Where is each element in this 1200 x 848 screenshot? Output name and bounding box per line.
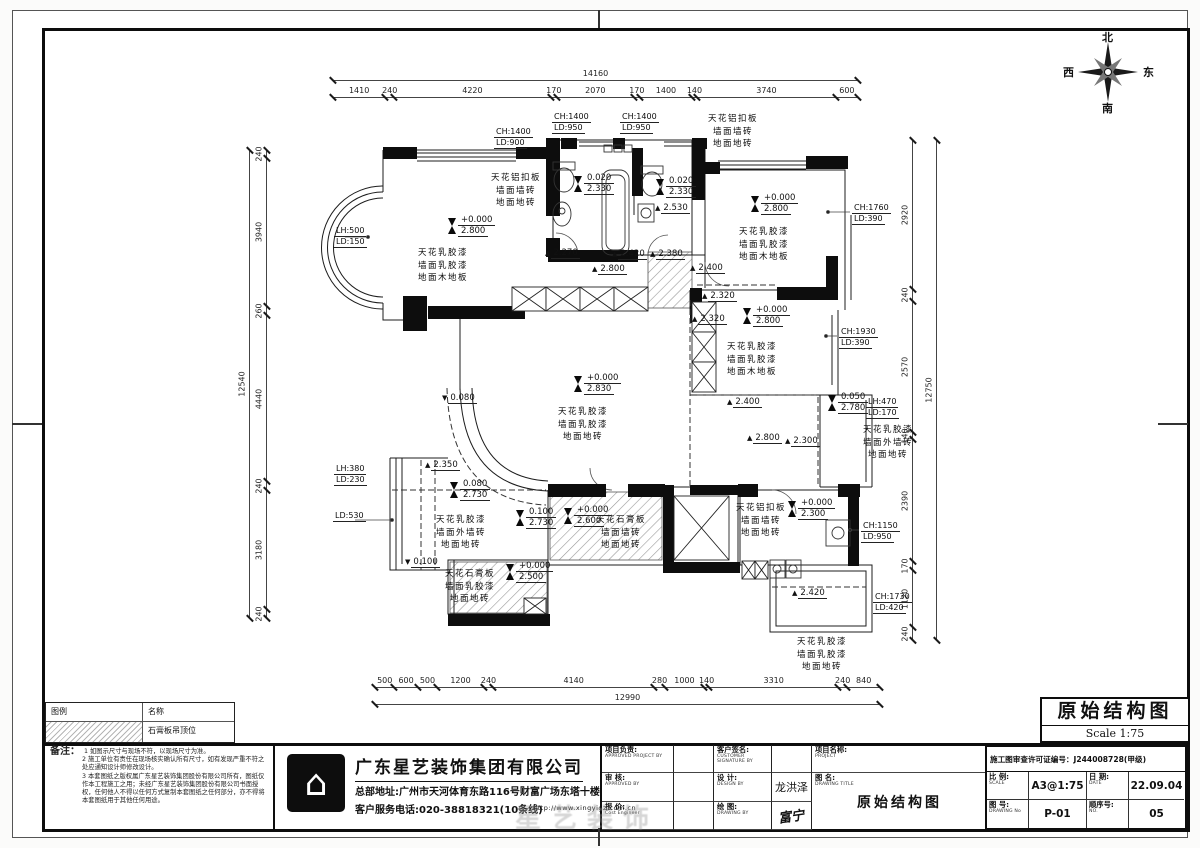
finish-label: 天花石膏板墙面乳胶漆地面地砖 (445, 568, 495, 606)
drawing-title-box: 原始结构图 Scale 1:75 (1040, 697, 1190, 743)
cell-drawn-by-value: 富宁 (772, 802, 812, 830)
house-icon: ⌂ (305, 763, 328, 804)
cell-scale-value: A3@1:75 (1029, 772, 1087, 800)
level-marker: ▲2.420 (792, 588, 827, 598)
dimension-label: 140 (699, 676, 714, 685)
triangle-up-icon: ▲ (545, 249, 550, 257)
dimension-label: 140 (687, 86, 702, 95)
elevation-bowtie-icon (506, 564, 514, 580)
license-number: 施工图审查许可证编号：J244008728(甲级) (987, 747, 1185, 772)
finish-label: 天花乳胶漆墙面外墙砖地面地砖 (863, 424, 913, 462)
cell-seq-label: 顺序号:NO. (1087, 800, 1129, 828)
dimension-label: 240 (382, 86, 397, 95)
dimension-label: 2390 (901, 491, 910, 511)
cell-check-value (674, 773, 714, 801)
dimension-label: 2570 (901, 357, 910, 377)
dimension-label: 4220 (462, 86, 482, 95)
cell-drawing-title: 图 名:DRAWING TITLE 原始结构图 (812, 773, 987, 830)
triangle-down-icon: ▼ (442, 394, 447, 402)
dimension-line (266, 150, 267, 618)
finish-label: 天花铝扣板墙面墙砖地面地砖 (736, 502, 786, 540)
level-marker: ▲2.530 (655, 203, 690, 213)
elevation-bowtie-icon (448, 218, 456, 234)
elevation-bowtie-icon (564, 508, 572, 524)
legend-header-name: 名称 (143, 703, 234, 722)
level-marker: ▲2.300 (785, 436, 820, 446)
dimension-line (936, 140, 937, 640)
elevation-marker: 0.0202.330 (656, 176, 696, 198)
dimension-label: 4440 (255, 388, 264, 408)
height-label: CH:1930LD:390 (839, 327, 878, 349)
triangle-up-icon: ▲ (690, 264, 695, 272)
elevation-bowtie-icon (574, 176, 582, 192)
elevation-marker: +0.0002.600 (564, 505, 611, 527)
height-label: LH:470LD:170 (866, 397, 899, 419)
cell-customer-signature-value (772, 745, 812, 773)
triangle-down-icon: ▼ (405, 558, 410, 566)
dimension-label: 12540 (238, 371, 247, 396)
cell-drawn-by: 绘 图:DRAWING BY (714, 802, 772, 830)
dimension-label: 240 (255, 147, 264, 162)
elevation-marker: +0.0002.800 (751, 193, 798, 215)
dimension-label: 2920 (901, 204, 910, 224)
dimension-label: 240 (835, 676, 850, 685)
company-logo: ⌂ (287, 754, 345, 812)
elevation-marker: 0.1002.730 (516, 507, 556, 529)
level-marker: ▲2.350 (425, 460, 460, 470)
cell-design-value: 龙洪泽 (772, 773, 812, 801)
level-marker: ▼0.080 (442, 393, 477, 403)
elevation-marker: +0.0002.800 (743, 305, 790, 327)
dimension-line (333, 80, 858, 81)
cell-scale-label: 比 例:SCALE (987, 772, 1029, 800)
dimension-label: 600 (398, 676, 413, 685)
dimension-label: 12750 (925, 377, 934, 402)
triangle-up-icon: ▲ (592, 265, 597, 273)
note-item: 2 施工单位有责任在现场核实确认所有尺寸，如有发现严重不符之处应通知设计师修改设… (82, 756, 268, 772)
dimension-line (375, 687, 880, 688)
elevation-bowtie-icon (516, 510, 524, 526)
height-label: LH:500LD:150 (334, 226, 367, 248)
finish-label: 天花乳胶漆墙面乳胶漆地面木地板 (727, 341, 777, 379)
notes-box: 备注： 1 如图示尺寸与现场不符，以现场尺寸为准。2 施工单位有责任在现场核实确… (45, 745, 273, 830)
dimension-label: 240 (481, 676, 496, 685)
elevation-bowtie-icon (788, 501, 796, 517)
dimension-label: 240 (255, 478, 264, 493)
dimension-label: 170 (901, 559, 910, 574)
dimension-label: 3180 (255, 540, 264, 560)
cell-drawingno-value: P-01 (1029, 800, 1087, 828)
dimension-label: 3310 (763, 676, 783, 685)
legend-table: 图例 名称 石膏板吊顶位 (45, 702, 235, 743)
height-label: CH:1730LD:420 (873, 592, 912, 614)
info-table: 施工图审查许可证编号：J244008728(甲级) 比 例:SCALE A3@1… (985, 745, 1187, 830)
elevation-marker: 0.0802.730 (450, 479, 490, 501)
drawing-title-small: 原始结构图 (812, 792, 987, 812)
cell-drawingno-label: 图 号:DRAWING No (987, 800, 1029, 828)
height-label: CH:1400LD:900 (494, 127, 533, 149)
elevation-bowtie-icon (828, 395, 836, 411)
dimension-label: 840 (856, 676, 871, 685)
level-marker: ▲2.320 (702, 291, 737, 301)
triangle-up-icon: ▲ (727, 398, 732, 406)
elevation-marker: +0.0002.300 (788, 498, 835, 520)
elevation-bowtie-icon (656, 179, 664, 195)
height-label: CH:1400LD:950 (552, 112, 591, 134)
finish-label: 天花乳胶漆墙面外墙砖地面地砖 (436, 514, 486, 552)
triangle-up-icon: ▲ (785, 437, 790, 445)
dimension-label: 1400 (656, 86, 676, 95)
elevation-bowtie-icon (751, 196, 759, 212)
dimension-label: 4140 (563, 676, 583, 685)
cell-design: 设 计:DESIGN BY (714, 773, 772, 801)
height-label: LD:530 (333, 511, 366, 522)
dimension-label: 240 (901, 626, 910, 641)
cell-customer-signature: 客户签名:CUSTOMER SIGNATURE BY (714, 745, 772, 773)
finish-label: 天花乳胶漆墙面乳胶漆地面地砖 (558, 406, 608, 444)
dimension-label: 600 (839, 86, 854, 95)
notes-list: 1 如图示尺寸与现场不符，以现场尺寸为准。2 施工单位有责任在现场核实确认所有尺… (82, 748, 268, 805)
level-marker: ▲2.400 (727, 397, 762, 407)
height-label: CH:1400LD:950 (620, 112, 659, 134)
legend-hatch-swatch (46, 722, 143, 742)
dimension-line (333, 97, 858, 98)
drawing-title: 原始结构图 (1042, 699, 1188, 726)
elevation-bowtie-icon (743, 308, 751, 324)
triangle-up-icon: ▲ (425, 461, 430, 469)
dimension-label: 280 (652, 676, 667, 685)
dimension-label: 1000 (674, 676, 694, 685)
elevation-marker: +0.0002.500 (506, 561, 553, 583)
triangle-up-icon: ▲ (655, 204, 660, 212)
finish-label: 天花铝扣板墙面墙砖地面地砖 (491, 172, 541, 210)
note-item: 1 如图示尺寸与现场不符，以现场尺寸为准。 (82, 748, 268, 756)
dimension-label: 500 (420, 676, 435, 685)
level-marker: ▲2.420 (612, 249, 647, 259)
elevation-bowtie-icon (574, 376, 582, 392)
cell-project-name: 项目名称:PROJECT (812, 745, 987, 773)
finish-label: 天花乳胶漆墙面乳胶漆地面木地板 (418, 247, 468, 285)
dimension-line (375, 704, 880, 705)
company-name: 广东星艺装饰集团有限公司 (355, 753, 583, 782)
level-marker: ▲2.800 (747, 433, 782, 443)
finish-label: 天花乳胶漆墙面乳胶漆地面木地板 (739, 226, 789, 264)
level-marker: ▼0.100 (405, 557, 440, 567)
notes-label: 备注： (50, 748, 80, 756)
dimension-label: 14160 (583, 69, 608, 78)
elevation-marker: 0.0502.780 (828, 392, 868, 414)
level-marker: ▲2.320 (692, 314, 727, 324)
elevation-marker: +0.0002.800 (448, 215, 495, 237)
dimension-label: 260 (255, 303, 264, 318)
level-marker: ▲2.380 (650, 249, 685, 259)
legend-item-gypsum: 石膏板吊顶位 (143, 722, 234, 742)
cell-project-lead: 项目负责:APPROVED PROJECT BY (602, 745, 674, 773)
company-address: 总部地址:广州市天河体育东路116号财富广场东塔十楼 (355, 783, 600, 798)
cell-date-label: 日 期:DATE (1087, 772, 1129, 800)
triangle-up-icon: ▲ (612, 250, 617, 258)
elevation-marker: 0.0202.330 (574, 173, 614, 195)
finish-label: 天花乳胶漆墙面乳胶漆地面地砖 (797, 636, 847, 674)
elevation-bowtie-icon (450, 482, 458, 498)
dimension-line (912, 140, 913, 640)
drawn-by-signature: 富宁 (777, 804, 805, 826)
level-marker: ▲2.800 (592, 264, 627, 274)
note-item: 3 本套图纸之版权属广东星艺装饰集团股份有限公司所有，图纸仅作本工程施工之用；未… (82, 773, 268, 806)
triangle-up-icon: ▲ (650, 250, 655, 258)
dimension-label: 170 (629, 86, 644, 95)
dimension-label: 2070 (585, 86, 605, 95)
watermark: 星艺装饰 (515, 798, 659, 835)
cell-seq-value: 05 (1129, 800, 1184, 828)
dimension-label: 3740 (756, 86, 776, 95)
height-label: CH:1760LD:390 (852, 203, 891, 225)
level-marker: ▲2.400 (690, 263, 725, 273)
dimension-label: 12990 (615, 693, 640, 702)
dimension-label: 1200 (450, 676, 470, 685)
triangle-up-icon: ▲ (792, 589, 797, 597)
finish-label: 天花铝扣板墙面墙砖地面地砖 (708, 113, 758, 151)
dimension-label: 1410 (349, 86, 369, 95)
dimension-label: 240 (255, 606, 264, 621)
elevation-marker: +0.0002.830 (574, 373, 621, 395)
cell-quote-value (674, 802, 714, 830)
cell-date-value: 22.09.04 (1129, 772, 1184, 800)
legend-header-symbol: 图例 (46, 703, 143, 722)
triangle-up-icon: ▲ (702, 292, 707, 300)
dimension-label: 500 (377, 676, 392, 685)
dimension-label: 3940 (255, 222, 264, 242)
dimension-label: 240 (901, 288, 910, 303)
triangle-up-icon: ▲ (747, 434, 752, 442)
dimension-line (249, 150, 250, 618)
height-label: LH:380LD:230 (334, 464, 367, 486)
height-label: CH:1150LD:950 (861, 521, 900, 543)
cell-project-lead-value (674, 745, 714, 773)
drawing-scale: Scale 1:75 (1042, 726, 1188, 742)
triangle-up-icon: ▲ (692, 315, 697, 323)
level-marker: ▲2.270 (545, 248, 580, 258)
dimension-label: 170 (546, 86, 561, 95)
